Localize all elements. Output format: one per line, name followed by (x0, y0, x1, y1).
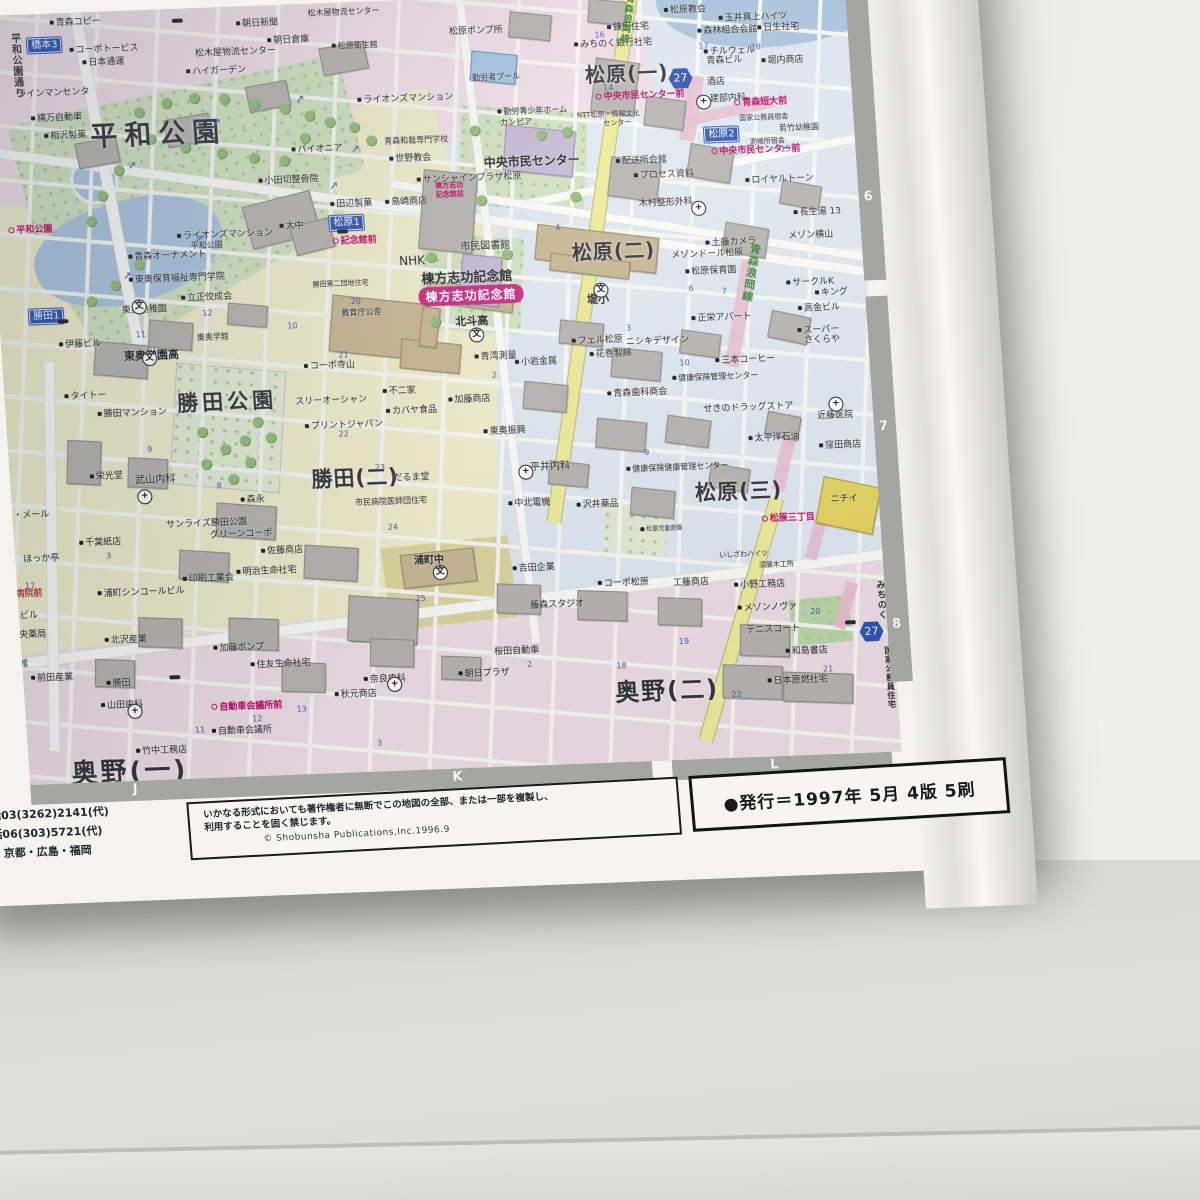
landmark-label: 伊藤ビル (59, 340, 102, 351)
landmark-label: 朝日新聞 (236, 19, 279, 30)
landmark-label: 相沢製菓 (44, 131, 87, 142)
landmark-label: 若竹幼稚園 (779, 123, 820, 133)
landmark-label: 加藤商店 (448, 395, 491, 406)
intersection-name-sign: 橋本3 (27, 37, 62, 53)
landmark-label: 花巻製綿 (589, 350, 632, 361)
landmark-label: ラ・メール (4, 511, 50, 522)
map-building (227, 303, 268, 328)
map-building (508, 11, 552, 41)
map-sheet: 平和公園勝田公園勝田(二)松原(一)松原(二)松原(三)奥野(一)奥野(二)青森… (0, 0, 1035, 907)
one-way-arrow-icon: ↗ (122, 271, 132, 282)
grid-letter: L (770, 758, 779, 771)
block-number: 3 (106, 553, 112, 561)
district-label: 松原(三) (694, 480, 783, 504)
block-number: 12 (252, 715, 263, 723)
landmark-label: キング (815, 288, 848, 298)
block-number: 20 (810, 607, 821, 615)
photo-of-paper-map: 平和公園勝田公園勝田(二)松原(一)松原(二)松原(三)奥野(一)奥野(二)青森… (0, 0, 1200, 1200)
landmark-label: 東奥学館 (197, 333, 230, 342)
landmark-label: 酒店 (707, 78, 726, 88)
block-number: 25 (415, 595, 426, 603)
landmark-label: 秋元商店 (335, 690, 378, 701)
landmark-label: 日本通運 (82, 58, 125, 69)
landmark-label: だるま堂 (393, 473, 430, 483)
landmark-label: タイトー (64, 392, 107, 403)
landmark-label: 平井内科 (530, 462, 571, 474)
block-number: 2 (527, 661, 533, 669)
landmark-label: 佐藤商店 (261, 546, 304, 557)
landmark-label: 中北電機 (508, 499, 551, 510)
block-number: 18 (616, 662, 627, 670)
landmark-label: 大中 (279, 222, 304, 232)
landmark-label: 千葉紙店 (79, 538, 122, 549)
memorial-hall-pill-label: 棟方志功記念館 (418, 284, 524, 307)
landmark-label: 須藤木工所 (759, 560, 794, 568)
one-way-arrow-icon: ↗ (194, 234, 204, 245)
landmark-label: 栄光堂 (90, 472, 124, 482)
landmark-label: 和島書店 (785, 646, 828, 657)
landmark-label: カンピア (500, 118, 533, 127)
map-print-area: 平和公園勝田公園勝田(二)松原(一)松原(二)松原(三)奥野(一)奥野(二)青森… (0, 0, 902, 785)
landmark-label: 桜田自動車 (494, 646, 540, 657)
traffic-signal-icon (169, 675, 180, 679)
publisher-contact-block: 話03(3262)2141(代) 話06(303)5721(代) ・京都・広島・… (0, 802, 112, 863)
block-number: 9 (644, 449, 650, 457)
one-way-arrow-icon: ↗ (350, 144, 360, 155)
intersection-name-sign: 松原2 (704, 126, 739, 142)
map-building (577, 590, 627, 622)
map-building (595, 418, 647, 453)
block-number: 11 (135, 331, 146, 339)
block-number: 11 (195, 726, 206, 734)
one-way-arrow-icon: ↗ (127, 160, 137, 171)
landmark-label: 長生湯 13 (793, 207, 841, 218)
edition-text: ●発行＝1997年 5月 4版 5刷 (722, 775, 976, 815)
one-way-arrow-icon: ↗ (211, 117, 221, 128)
landmark-label: 青森ビル (706, 56, 743, 66)
grid-number: 6 (863, 190, 873, 203)
grid-number: 8 (892, 617, 902, 630)
landmark-label: 東奥振興 (483, 427, 526, 438)
block-number: 8 (217, 482, 223, 490)
one-way-arrow-icon: ↗ (329, 181, 339, 192)
block-number: 18 (750, 43, 761, 51)
landmark-label: 北沢産業 (105, 635, 148, 646)
block-number: 7 (722, 288, 728, 296)
landmark-label: 堀内商店 (761, 56, 804, 67)
landmark-label: 田ビル (11, 612, 39, 622)
traffic-signal-icon (172, 19, 183, 23)
traffic-signal-icon (337, 229, 348, 233)
district-label: 奥野(二) (614, 676, 719, 704)
block-number: 12 (202, 310, 213, 318)
block-number: 21 (823, 665, 834, 673)
landmark-label: 中央薬局 (10, 630, 47, 640)
landmark-label: 市民図書館 (460, 241, 511, 253)
block-number: 22 (338, 430, 349, 438)
map-building (303, 545, 358, 582)
block-number: 17 (698, 42, 709, 50)
landmark-label: 武山内科 (135, 475, 176, 487)
block-number: 22 (731, 691, 742, 699)
bus-stop-label: 平和公園 (8, 226, 53, 237)
landmark-label: 世野教会 (389, 154, 432, 165)
bus-stop-label: 記念館前 (436, 191, 464, 199)
district-label: 勝田公園 (177, 390, 278, 415)
block-number: 4 (555, 224, 561, 232)
landmark-label: 窪田商店 (819, 441, 862, 452)
grid-number: 7 (879, 420, 889, 433)
landmark-label: 森永 (240, 496, 265, 506)
block-number: 10 (287, 322, 298, 330)
grid-letter: K (452, 770, 463, 783)
landmark-label: センター (603, 119, 631, 127)
block-number: 9 (147, 446, 153, 454)
landmark-label: 田辺製菓 (330, 199, 373, 210)
block-number: 24 (388, 524, 399, 532)
district-label: 平和公園 (90, 119, 228, 151)
block-number: 10 (679, 359, 690, 367)
landmark-label: ほっか亭 (23, 555, 60, 565)
map-building (148, 319, 194, 351)
block-number: 6 (688, 285, 694, 293)
landmark-label: 中央市民センター (483, 153, 580, 169)
block-number: 16 (594, 31, 605, 39)
landmark-label: 日生社宅 (757, 23, 800, 34)
landmark-label: 朝日倉庫 (267, 36, 310, 47)
landmark-label: 小岩金属 (515, 357, 558, 368)
block-number: 2 (492, 372, 498, 380)
landmark-label: さくらや (804, 336, 841, 346)
block-number: 21 (338, 351, 349, 359)
one-way-arrow-icon: ↗ (295, 94, 305, 105)
landmark-label: 教育庁公舎 (341, 308, 382, 318)
landmark-label: 前田産業 (31, 673, 74, 684)
landmark-label: 不二家 (383, 387, 417, 397)
district-label: 勝田(二) (311, 467, 400, 491)
block-number: 20 (351, 298, 362, 306)
landmark-label: 青湾測量 (474, 352, 517, 363)
landmark-label: 会館 (10, 660, 29, 670)
landmark-label: 沢井薬品 (576, 500, 619, 511)
traffic-signal-icon (845, 620, 856, 624)
landmark-label: 吉田企業 (513, 564, 556, 575)
office-cities: ・京都・広島・福岡 (0, 840, 112, 864)
grid-letter: J (132, 783, 138, 796)
block-number: 23 (375, 464, 386, 472)
block-number: 19 (679, 638, 690, 646)
landmark-label: 工藤商店 (673, 578, 710, 588)
block-number: 3 (377, 739, 383, 747)
landmark-label: 勝田 (106, 679, 131, 689)
landmark-label: ニチイ (831, 495, 859, 505)
landmark-label: メゾン横山 (788, 231, 834, 242)
landmark-label: 松原教会 (664, 5, 707, 16)
landmark-label: NHK (399, 254, 426, 267)
traffic-signal-icon (57, 319, 68, 323)
map-building (643, 96, 686, 131)
landmark-label: 島崎商店 (385, 197, 428, 208)
block-number: 13 (296, 705, 307, 713)
district-label: 松原(二) (571, 240, 656, 263)
map-building (522, 381, 568, 413)
map-building (658, 597, 702, 626)
landmark-label: 近藤医院 (817, 411, 854, 421)
landmark-label: 高金ビル (798, 304, 841, 315)
bus-stop-label: 棟方志功 (435, 182, 463, 190)
district-label: 松原(一) (584, 62, 669, 85)
map-building (370, 638, 414, 667)
landmark-label: 北斗高 (455, 315, 489, 327)
map-building (665, 415, 712, 449)
block-number: 3 (626, 325, 632, 333)
map-building (630, 487, 676, 519)
landmark-label: サークルK (786, 278, 834, 289)
bus-stop-label: 記念館前 (332, 236, 377, 247)
